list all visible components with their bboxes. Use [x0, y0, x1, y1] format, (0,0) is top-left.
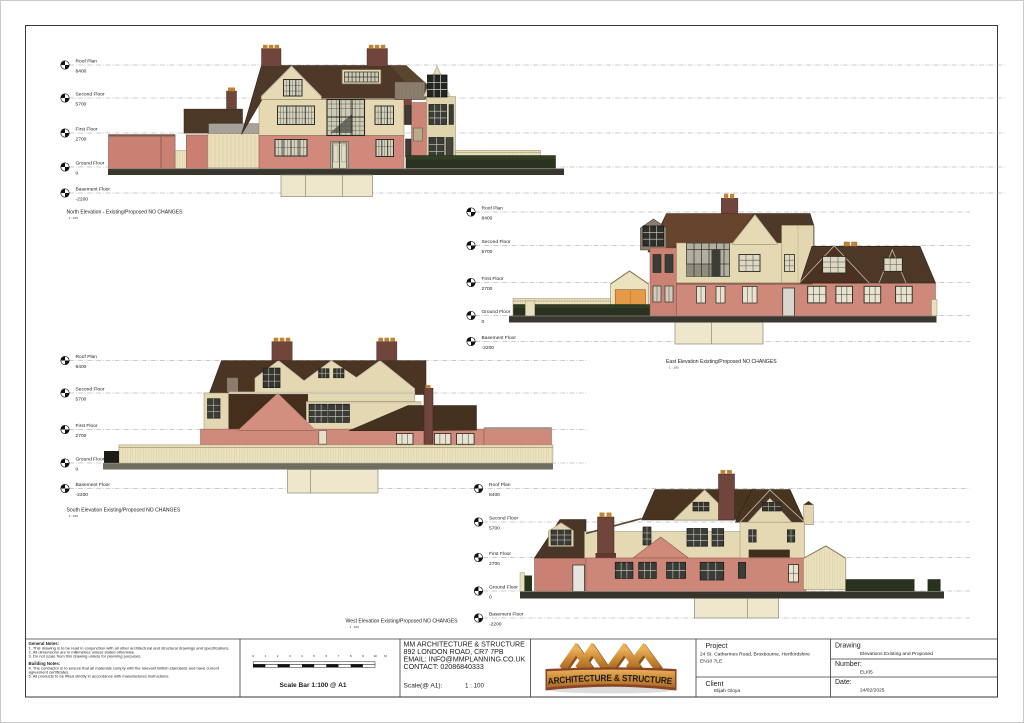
svg-text:Roof Plan: Roof Plan	[76, 59, 98, 65]
svg-text:Second Floor: Second Floor	[76, 387, 105, 393]
svg-text:First Floor: First Floor	[76, 127, 98, 133]
svg-text:5700: 5700	[76, 397, 87, 403]
svg-text:West Elevation Existing/Propos: West Elevation Existing/Proposed NO CHAN…	[346, 619, 459, 625]
svg-text:2700: 2700	[482, 286, 493, 292]
svg-text:ELI05: ELI05	[860, 670, 873, 676]
svg-text:0: 0	[76, 467, 79, 473]
svg-text:Drawing: Drawing	[835, 643, 861, 650]
svg-text:Basement Floor: Basement Floor	[76, 482, 111, 488]
svg-text:Scale(@ A1):: Scale(@ A1):	[404, 683, 443, 690]
svg-text:Second Floor: Second Floor	[482, 239, 511, 245]
svg-text:5700: 5700	[76, 102, 87, 108]
svg-text:Roof Plan: Roof Plan	[76, 354, 98, 360]
svg-text:1 : 100: 1 : 100	[69, 216, 79, 220]
svg-text:South Elevation Existing/Propo: South Elevation Existing/Proposed NO CHA…	[67, 508, 181, 514]
svg-text:Client: Client	[706, 681, 724, 688]
svg-text:Project: Project	[706, 643, 728, 650]
svg-text:-2200: -2200	[76, 197, 89, 203]
svg-text:24 St. Catherines Road, Broxbo: 24 St. Catherines Road, Broxbourne, Hert…	[700, 652, 810, 658]
svg-text:8400: 8400	[482, 216, 493, 222]
svg-text:East Elevation Existing/Propos: East Elevation Existing/Proposed NO CHAN…	[666, 359, 777, 365]
svg-text:5700: 5700	[482, 249, 493, 255]
svg-text:2700: 2700	[76, 433, 87, 439]
svg-text:24/02/2025: 24/02/2025	[860, 688, 885, 694]
svg-text:1 : 100: 1 : 100	[669, 366, 679, 370]
svg-text:2700: 2700	[76, 137, 87, 143]
svg-text:Elijah Gloya: Elijah Gloya	[714, 688, 740, 694]
svg-text:Elevations Existing and Propos: Elevations Existing and Proposed	[860, 651, 933, 657]
svg-text:Second Floor: Second Floor	[76, 92, 105, 98]
svg-text:1 : 100: 1 : 100	[465, 683, 484, 690]
svg-text:5. All products to be fitted s: 5. All products to be fitted strictly in…	[29, 674, 170, 679]
svg-text:Number:: Number:	[835, 661, 862, 668]
svg-text:Basement Floor: Basement Floor	[76, 187, 111, 193]
svg-text:2700: 2700	[489, 561, 500, 567]
svg-text:10: 10	[373, 654, 377, 658]
svg-text:Ground Floor: Ground Floor	[482, 309, 511, 315]
svg-text:8400: 8400	[76, 364, 87, 370]
svg-text:First Floor: First Floor	[76, 423, 98, 429]
svg-text:Ground Floor: Ground Floor	[489, 585, 518, 591]
svg-text:Scale Bar 1:100 @ A1: Scale Bar 1:100 @ A1	[279, 682, 346, 689]
svg-text:-2200: -2200	[76, 492, 89, 498]
svg-text:EN10 7LE: EN10 7LE	[700, 659, 723, 665]
svg-text:Ground Floor: Ground Floor	[76, 161, 105, 167]
svg-text:Date:: Date:	[835, 679, 852, 686]
svg-text:First Floor: First Floor	[482, 276, 504, 282]
svg-text:-2200: -2200	[489, 622, 502, 628]
svg-text:3. Do not scale from this draw: 3. Do not scale from this drawing unless…	[29, 654, 142, 659]
svg-text:1 : 100: 1 : 100	[69, 514, 79, 518]
svg-text:North Elevation - Existing/Pro: North Elevation - Existing/Proposed NO C…	[67, 210, 184, 216]
svg-text:Ground Floor: Ground Floor	[76, 457, 105, 463]
svg-text:5700: 5700	[489, 526, 500, 532]
svg-text:8400: 8400	[76, 69, 87, 75]
svg-text:Second Floor: Second Floor	[489, 516, 518, 522]
svg-text:0: 0	[76, 171, 79, 177]
svg-text:0: 0	[489, 595, 492, 601]
svg-text:0: 0	[482, 319, 485, 325]
svg-text:8400: 8400	[489, 492, 500, 498]
svg-text:CONTACT: 02086840333: CONTACT: 02086840333	[404, 663, 484, 671]
svg-text:1 : 100: 1 : 100	[350, 625, 360, 629]
svg-text:First Floor: First Floor	[489, 551, 511, 557]
svg-text:-2200: -2200	[482, 345, 495, 351]
svg-text:Basement Floor: Basement Floor	[489, 612, 524, 618]
svg-text:Basement Floor: Basement Floor	[482, 335, 517, 341]
svg-text:Roof Plan: Roof Plan	[489, 482, 511, 488]
svg-text:Roof Plan: Roof Plan	[482, 206, 504, 212]
